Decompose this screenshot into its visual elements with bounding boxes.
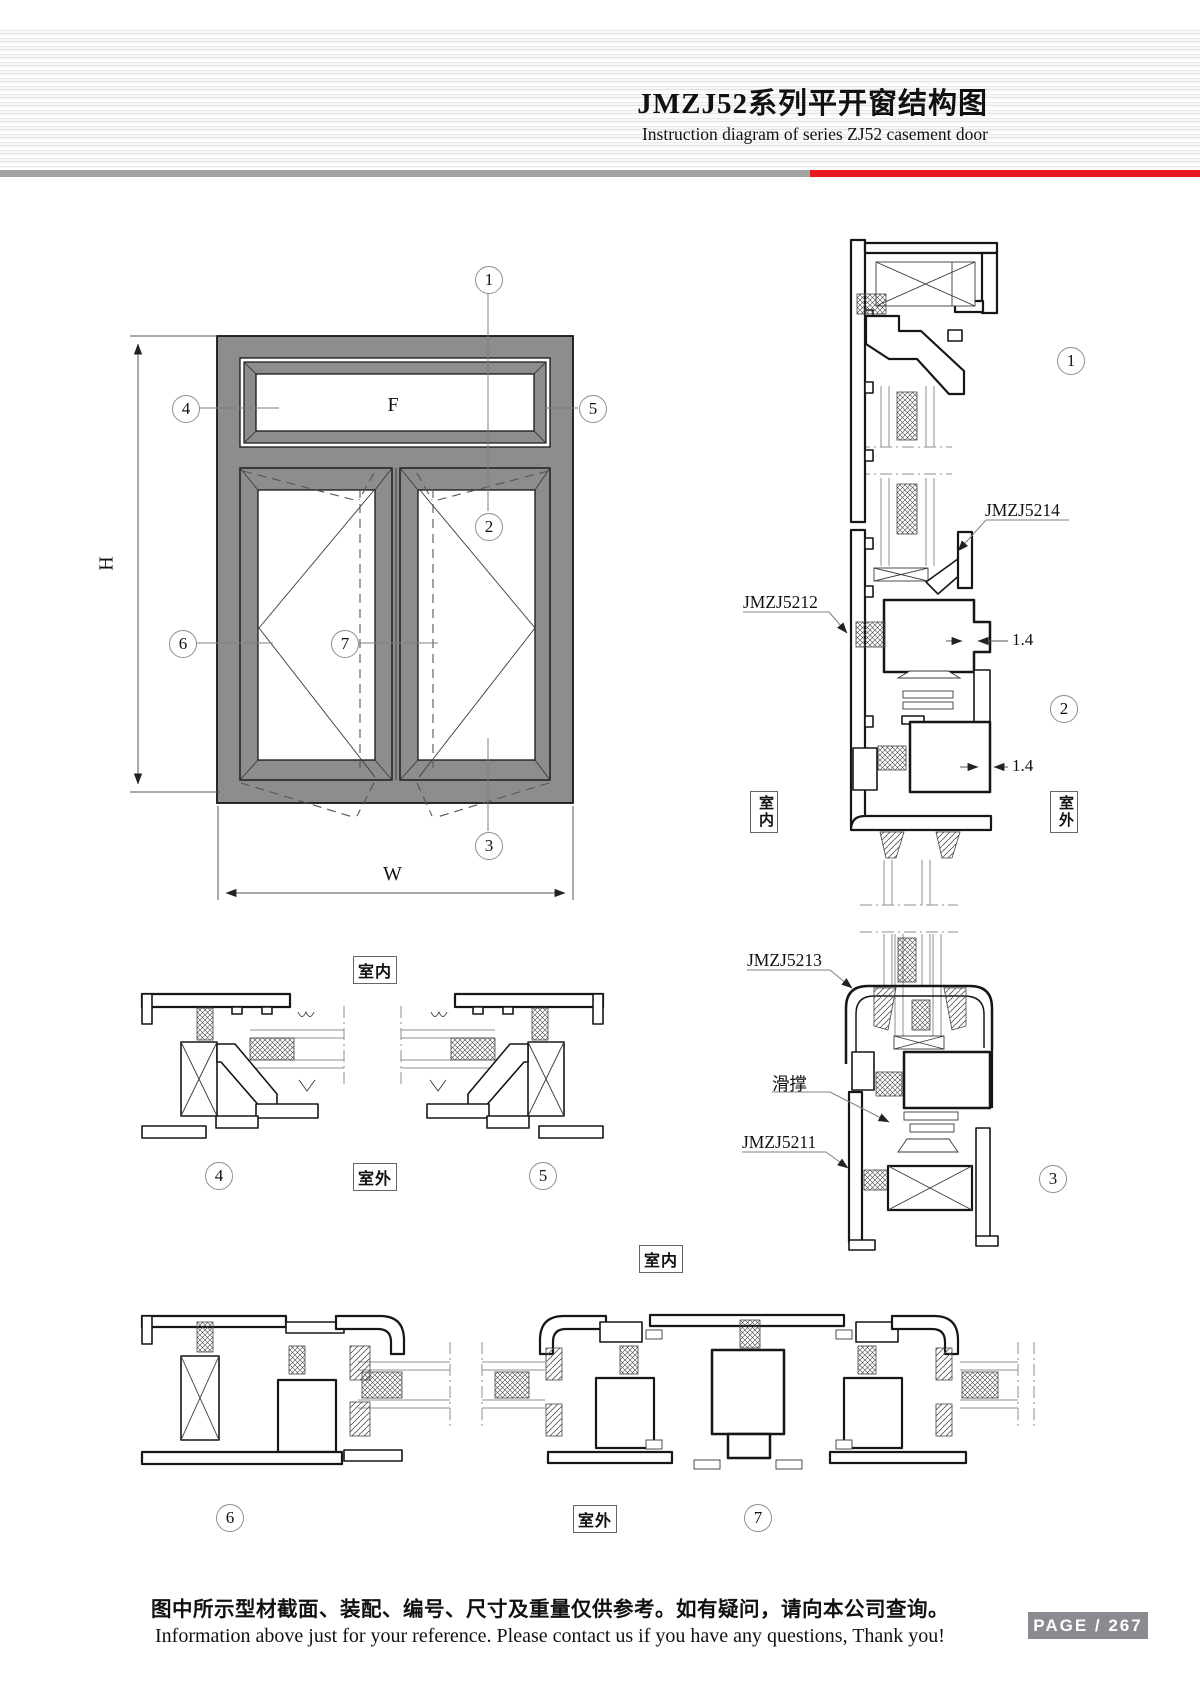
catalog-page: JMZJ52系列平开窗结构图 Instruction diagram of se… bbox=[0, 0, 1200, 1697]
horizontal-section-mid bbox=[142, 994, 603, 1138]
callout-1-section: 1 bbox=[1057, 347, 1085, 375]
outdoor-label-mid: 室外 bbox=[353, 1163, 397, 1191]
section-detail-2 bbox=[851, 530, 1008, 858]
profile-label-jmzj5214: JMZJ5214 bbox=[985, 500, 1060, 521]
page-subtitle: Instruction diagram of series ZJ52 casem… bbox=[637, 124, 988, 145]
wall-thickness-dim-lower: 1.4 bbox=[1012, 756, 1033, 776]
indoor-label-bottom: 室内 bbox=[639, 1245, 683, 1273]
page-number-badge: PAGE / 267 bbox=[1028, 1612, 1148, 1639]
friction-stay-label: 滑撑 bbox=[772, 1071, 807, 1096]
footer-notes: 图中所示型材截面、装配、编号、尺寸及重量仅供参考。如有疑问，请向本公司查询。 I… bbox=[150, 1592, 950, 1648]
callout-2-section: 2 bbox=[1050, 695, 1078, 723]
technical-drawing bbox=[0, 0, 1200, 1697]
callout-3-elevation: 3 bbox=[475, 832, 503, 860]
indoor-label-section: 室内 bbox=[750, 791, 778, 833]
width-dim-label: W bbox=[383, 863, 402, 886]
section-detail-7 bbox=[540, 1315, 966, 1469]
profile-label-jmzj5211: JMZJ5211 bbox=[742, 1132, 816, 1153]
callout-6-section: 6 bbox=[216, 1504, 244, 1532]
footer-note-zh: 图中所示型材截面、装配、编号、尺寸及重量仅供参考。如有疑问，请向本公司查询。 bbox=[150, 1592, 950, 1622]
profile-label-jmzj5212: JMZJ5212 bbox=[743, 592, 818, 613]
page-title: JMZJ52系列平开窗结构图 bbox=[637, 88, 988, 121]
callout-2-elevation: 2 bbox=[475, 513, 503, 541]
section-detail-1 bbox=[851, 240, 997, 522]
outdoor-label-section: 室外 bbox=[1050, 791, 1078, 833]
header: JMZJ52系列平开窗结构图 Instruction diagram of se… bbox=[637, 88, 988, 145]
callout-7-elevation: 7 bbox=[331, 630, 359, 658]
section-detail-4 bbox=[142, 994, 318, 1138]
callout-6-elevation: 6 bbox=[169, 630, 197, 658]
callout-4-elevation: 4 bbox=[172, 395, 200, 423]
profile-label-jmzj5213: JMZJ5213 bbox=[747, 950, 822, 971]
horizontal-section-bottom bbox=[142, 1315, 1034, 1469]
callout-5-elevation: 5 bbox=[579, 395, 607, 423]
callout-5-section: 5 bbox=[529, 1162, 557, 1190]
wall-thickness-dim-upper: 1.4 bbox=[1012, 630, 1033, 650]
height-dim-label: H bbox=[96, 556, 119, 570]
callout-4-section: 4 bbox=[205, 1162, 233, 1190]
callout-7-section: 7 bbox=[744, 1504, 772, 1532]
callout-3-section: 3 bbox=[1039, 1165, 1067, 1193]
outdoor-label-bottom: 室外 bbox=[573, 1505, 617, 1533]
vertical-section-column bbox=[742, 240, 1069, 1250]
indoor-label-mid: 室内 bbox=[353, 956, 397, 984]
callout-1-elevation: 1 bbox=[475, 266, 503, 294]
elevation-drawing bbox=[130, 293, 578, 900]
footer-note-en: Information above just for your referenc… bbox=[150, 1625, 950, 1648]
fixed-panel-label: F bbox=[381, 394, 405, 417]
